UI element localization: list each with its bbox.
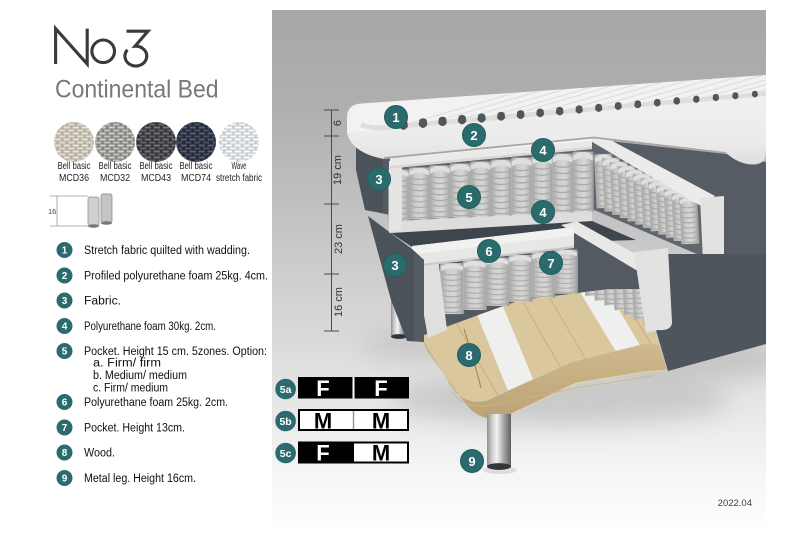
svg-text:5: 5 bbox=[62, 347, 68, 358]
svg-text:1: 1 bbox=[62, 246, 68, 257]
svg-text:Pocket. Height 13cm.: Pocket. Height 13cm. bbox=[84, 423, 185, 435]
svg-text:16: 16 bbox=[48, 207, 56, 216]
svg-text:Metal leg. Height 16cm.: Metal leg. Height 16cm. bbox=[84, 473, 196, 485]
svg-text:2022.04: 2022.04 bbox=[718, 498, 752, 509]
svg-text:8: 8 bbox=[465, 348, 472, 363]
svg-text:stretch fabric: stretch fabric bbox=[216, 173, 262, 184]
svg-text:M: M bbox=[314, 409, 332, 434]
svg-text:16 cm: 16 cm bbox=[333, 287, 345, 317]
svg-text:F: F bbox=[374, 376, 387, 401]
svg-text:2: 2 bbox=[470, 128, 477, 143]
svg-text:MCD32: MCD32 bbox=[100, 173, 130, 184]
svg-text:Bell basic: Bell basic bbox=[180, 161, 213, 172]
svg-text:Polyurethane foam 30kg. 2cm.: Polyurethane foam 30kg. 2cm. bbox=[84, 321, 216, 333]
svg-text:MCD74: MCD74 bbox=[181, 173, 211, 184]
svg-text:Bell basic: Bell basic bbox=[99, 161, 132, 172]
svg-text:Wave: Wave bbox=[232, 161, 247, 172]
svg-text:5: 5 bbox=[465, 190, 472, 205]
svg-text:b. Medium/ medium: b. Medium/ medium bbox=[93, 370, 187, 382]
svg-text:19 cm: 19 cm bbox=[332, 155, 344, 185]
svg-text:Stretch fabric quilted with wa: Stretch fabric quilted with wadding. bbox=[84, 245, 250, 257]
svg-text:8: 8 bbox=[62, 448, 68, 459]
svg-text:Profiled polyurethane foam 25k: Profiled polyurethane foam 25kg. 4cm. bbox=[84, 271, 268, 283]
svg-text:Bell basic: Bell basic bbox=[140, 161, 173, 172]
svg-text:Wood.: Wood. bbox=[84, 448, 115, 460]
svg-text:3: 3 bbox=[375, 172, 382, 187]
svg-text:3: 3 bbox=[62, 296, 68, 307]
svg-text:c. Firm/ medium: c. Firm/ medium bbox=[93, 382, 168, 394]
svg-text:Fabric.: Fabric. bbox=[84, 296, 121, 308]
svg-text:1: 1 bbox=[392, 110, 399, 125]
svg-text:Continental Bed: Continental Bed bbox=[55, 76, 219, 104]
svg-text:F: F bbox=[316, 376, 329, 401]
svg-text:M: M bbox=[372, 409, 390, 434]
svg-text:M: M bbox=[372, 441, 390, 466]
svg-text:Pocket. Height 15 cm. 5zones.: Pocket. Height 15 cm. 5zones. Option: bbox=[84, 346, 267, 358]
svg-text:4: 4 bbox=[539, 205, 547, 220]
svg-text:4: 4 bbox=[62, 322, 68, 333]
svg-text:Polyurethane foam 25kg. 2cm.: Polyurethane foam 25kg. 2cm. bbox=[84, 397, 228, 409]
svg-text:4: 4 bbox=[539, 143, 547, 158]
svg-text:6: 6 bbox=[332, 120, 344, 126]
svg-text:6: 6 bbox=[485, 244, 492, 259]
svg-text:5b: 5b bbox=[279, 416, 291, 428]
svg-text:7: 7 bbox=[547, 256, 554, 271]
svg-text:23 cm: 23 cm bbox=[333, 224, 345, 254]
svg-text:6: 6 bbox=[62, 398, 68, 409]
svg-text:MCD36: MCD36 bbox=[59, 173, 89, 184]
svg-text:9: 9 bbox=[468, 454, 475, 469]
svg-text:Bell basic: Bell basic bbox=[58, 161, 91, 172]
svg-text:2: 2 bbox=[62, 271, 68, 282]
svg-text:3: 3 bbox=[391, 258, 398, 273]
svg-text:a. Firm/ firm: a. Firm/ firm bbox=[93, 358, 161, 370]
svg-text:5a: 5a bbox=[280, 384, 292, 396]
svg-text:F: F bbox=[316, 441, 329, 466]
svg-text:MCD43: MCD43 bbox=[141, 173, 171, 184]
svg-text:7: 7 bbox=[62, 423, 68, 434]
svg-text:5c: 5c bbox=[280, 448, 292, 460]
svg-text:9: 9 bbox=[62, 474, 68, 485]
